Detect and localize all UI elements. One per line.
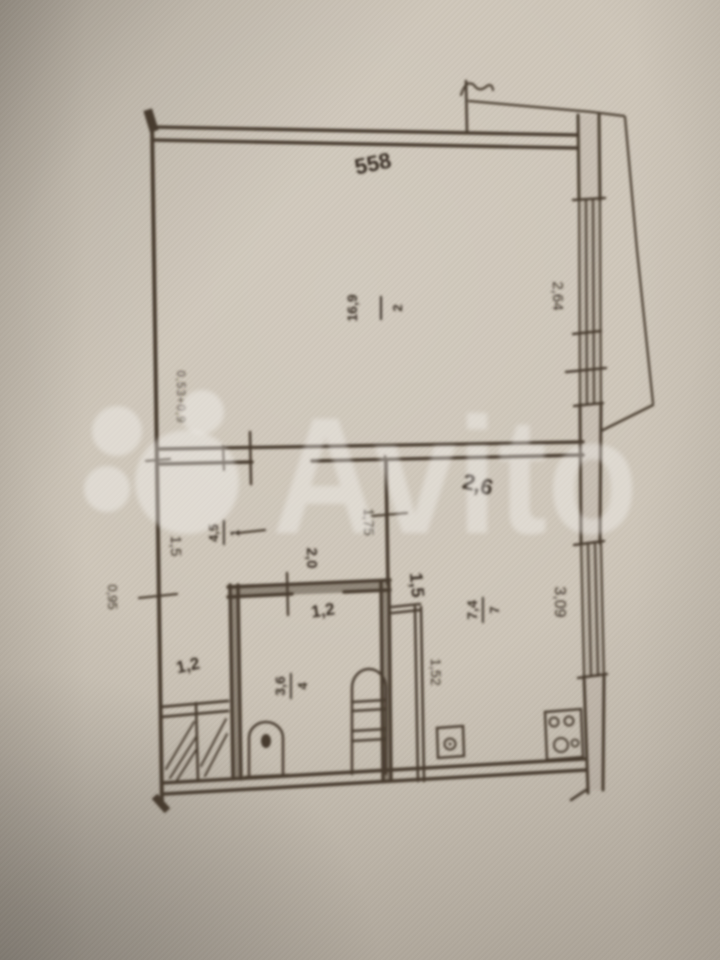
svg-text:2: 2 bbox=[390, 304, 405, 311]
svg-text:0,95: 0,95 bbox=[105, 584, 120, 609]
svg-text:16,9: 16,9 bbox=[344, 294, 360, 321]
svg-text:4: 4 bbox=[295, 682, 310, 690]
svg-text:2,64: 2,64 bbox=[549, 281, 566, 310]
svg-text:7,4: 7,4 bbox=[464, 600, 480, 620]
svg-text:1,2: 1,2 bbox=[174, 654, 201, 678]
svg-text:1,52: 1,52 bbox=[428, 658, 444, 685]
svg-text:1: 1 bbox=[228, 529, 242, 536]
svg-text:7: 7 bbox=[487, 606, 502, 613]
svg-text:3,6: 3,6 bbox=[272, 676, 288, 696]
svg-text:558: 558 bbox=[352, 147, 393, 179]
svg-text:1,5: 1,5 bbox=[167, 536, 184, 557]
svg-text:3,09: 3,09 bbox=[551, 586, 568, 617]
svg-text:1,5: 1,5 bbox=[406, 572, 428, 599]
svg-text:Avito: Avito bbox=[272, 384, 638, 569]
svg-text:1,2: 1,2 bbox=[310, 599, 336, 621]
